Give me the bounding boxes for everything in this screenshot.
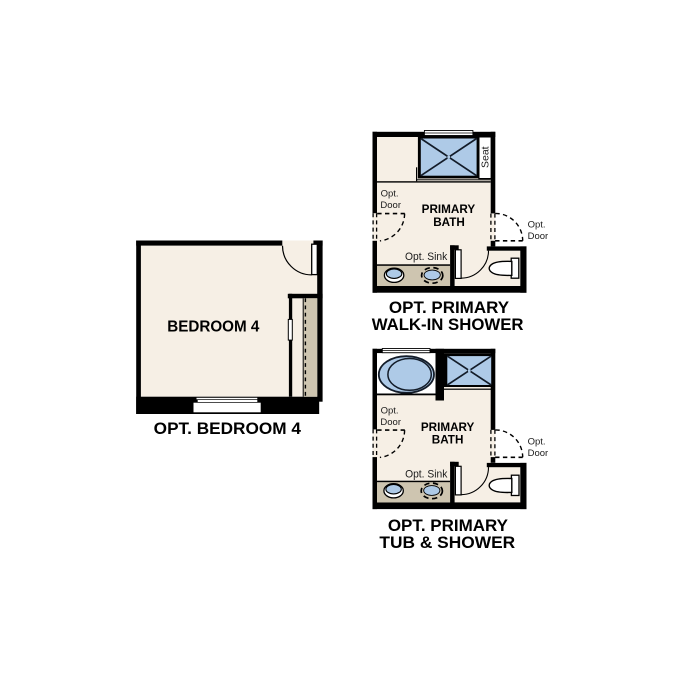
svg-text:Door: Door [380, 200, 401, 211]
svg-text:PRIMARY: PRIMARY [421, 421, 475, 434]
svg-text:Door: Door [528, 448, 549, 459]
svg-text:Opt.: Opt. [381, 406, 399, 417]
svg-text:BATH: BATH [433, 216, 465, 229]
svg-text:Door: Door [528, 231, 549, 242]
svg-text:Opt.: Opt. [381, 189, 399, 200]
svg-text:OPT. BEDROOM 4: OPT. BEDROOM 4 [154, 419, 302, 438]
svg-text:WALK-IN SHOWER: WALK-IN SHOWER [372, 315, 524, 334]
svg-text:Opt. Sink: Opt. Sink [405, 469, 448, 481]
svg-text:Opt. Sink: Opt. Sink [405, 251, 448, 263]
svg-text:PRIMARY: PRIMARY [422, 203, 476, 216]
svg-text:BEDROOM 4: BEDROOM 4 [167, 318, 259, 335]
svg-text:Door: Door [380, 417, 401, 428]
svg-text:Seat: Seat [480, 146, 492, 168]
svg-text:TUB & SHOWER: TUB & SHOWER [379, 533, 515, 552]
svg-text:BATH: BATH [432, 434, 464, 447]
svg-text:Opt.: Opt. [528, 436, 546, 447]
svg-text:Opt.: Opt. [528, 219, 546, 230]
